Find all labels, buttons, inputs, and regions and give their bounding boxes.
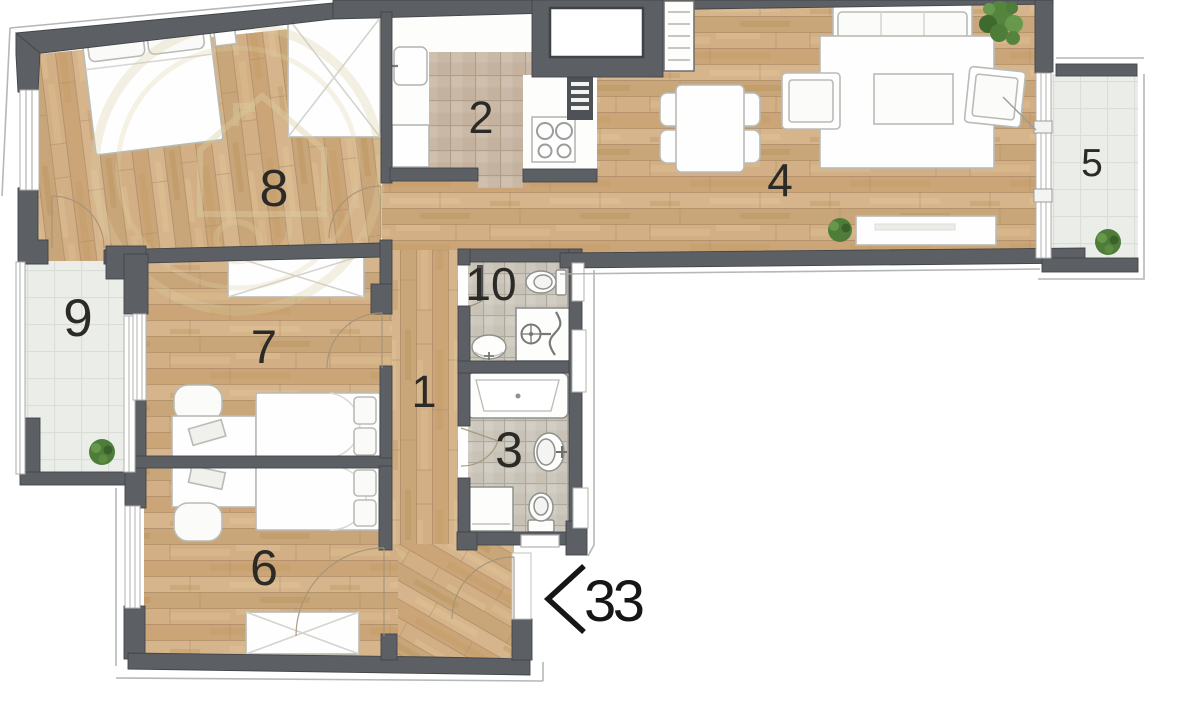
svg-text:33: 33 — [584, 569, 643, 634]
svg-text:8: 8 — [260, 160, 289, 218]
svg-text:7: 7 — [251, 320, 277, 373]
svg-text:1: 1 — [411, 366, 436, 417]
svg-text:2: 2 — [468, 92, 493, 143]
svg-text:10: 10 — [465, 258, 516, 310]
svg-text:5: 5 — [1081, 142, 1103, 185]
svg-text:9: 9 — [63, 289, 92, 348]
svg-text:6: 6 — [250, 540, 278, 596]
svg-text:4: 4 — [767, 154, 793, 206]
svg-text:3: 3 — [495, 422, 523, 478]
